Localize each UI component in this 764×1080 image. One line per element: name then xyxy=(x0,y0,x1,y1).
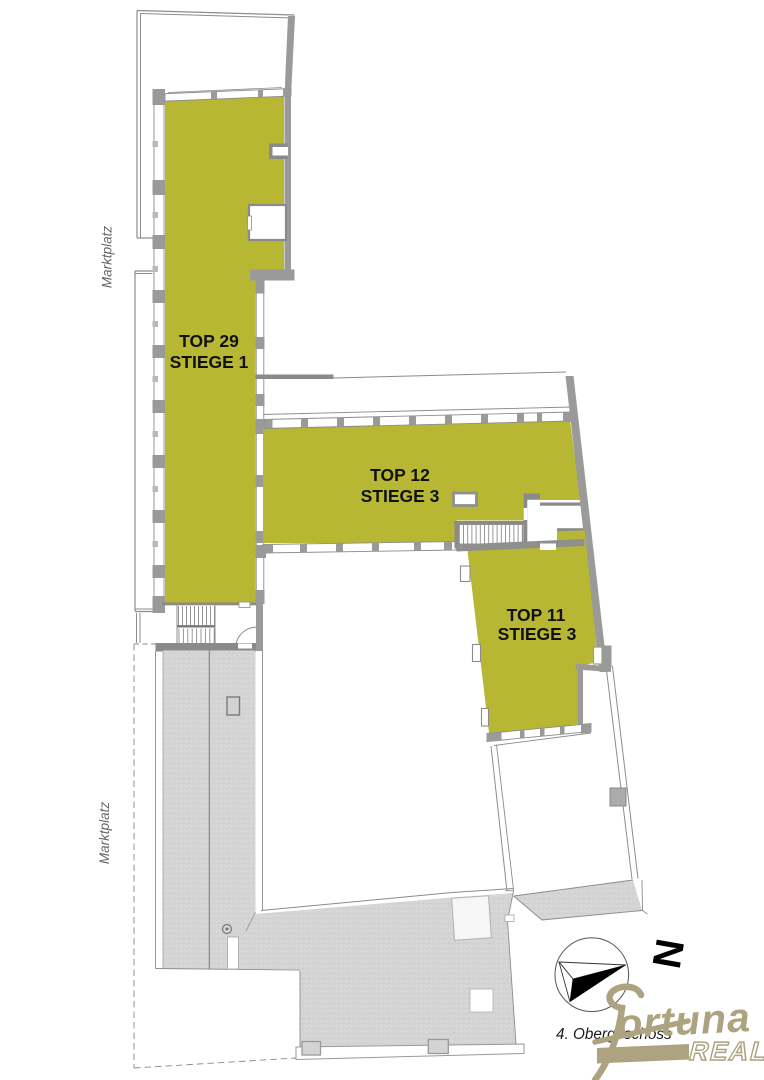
svg-text:Marktplatz: Marktplatz xyxy=(97,802,112,865)
svg-text:STIEGE 3: STIEGE 3 xyxy=(498,624,577,644)
svg-text:STIEGE 3: STIEGE 3 xyxy=(361,486,440,506)
svg-text:Marktplatz: Marktplatz xyxy=(100,226,115,289)
svg-text:STIEGE 1: STIEGE 1 xyxy=(170,352,249,372)
svg-text:REAL: REAL xyxy=(686,1036,764,1066)
svg-text:TOP 29: TOP 29 xyxy=(179,331,239,351)
svg-text:TOP 12: TOP 12 xyxy=(370,465,430,485)
svg-text:TOP 11: TOP 11 xyxy=(507,605,566,625)
